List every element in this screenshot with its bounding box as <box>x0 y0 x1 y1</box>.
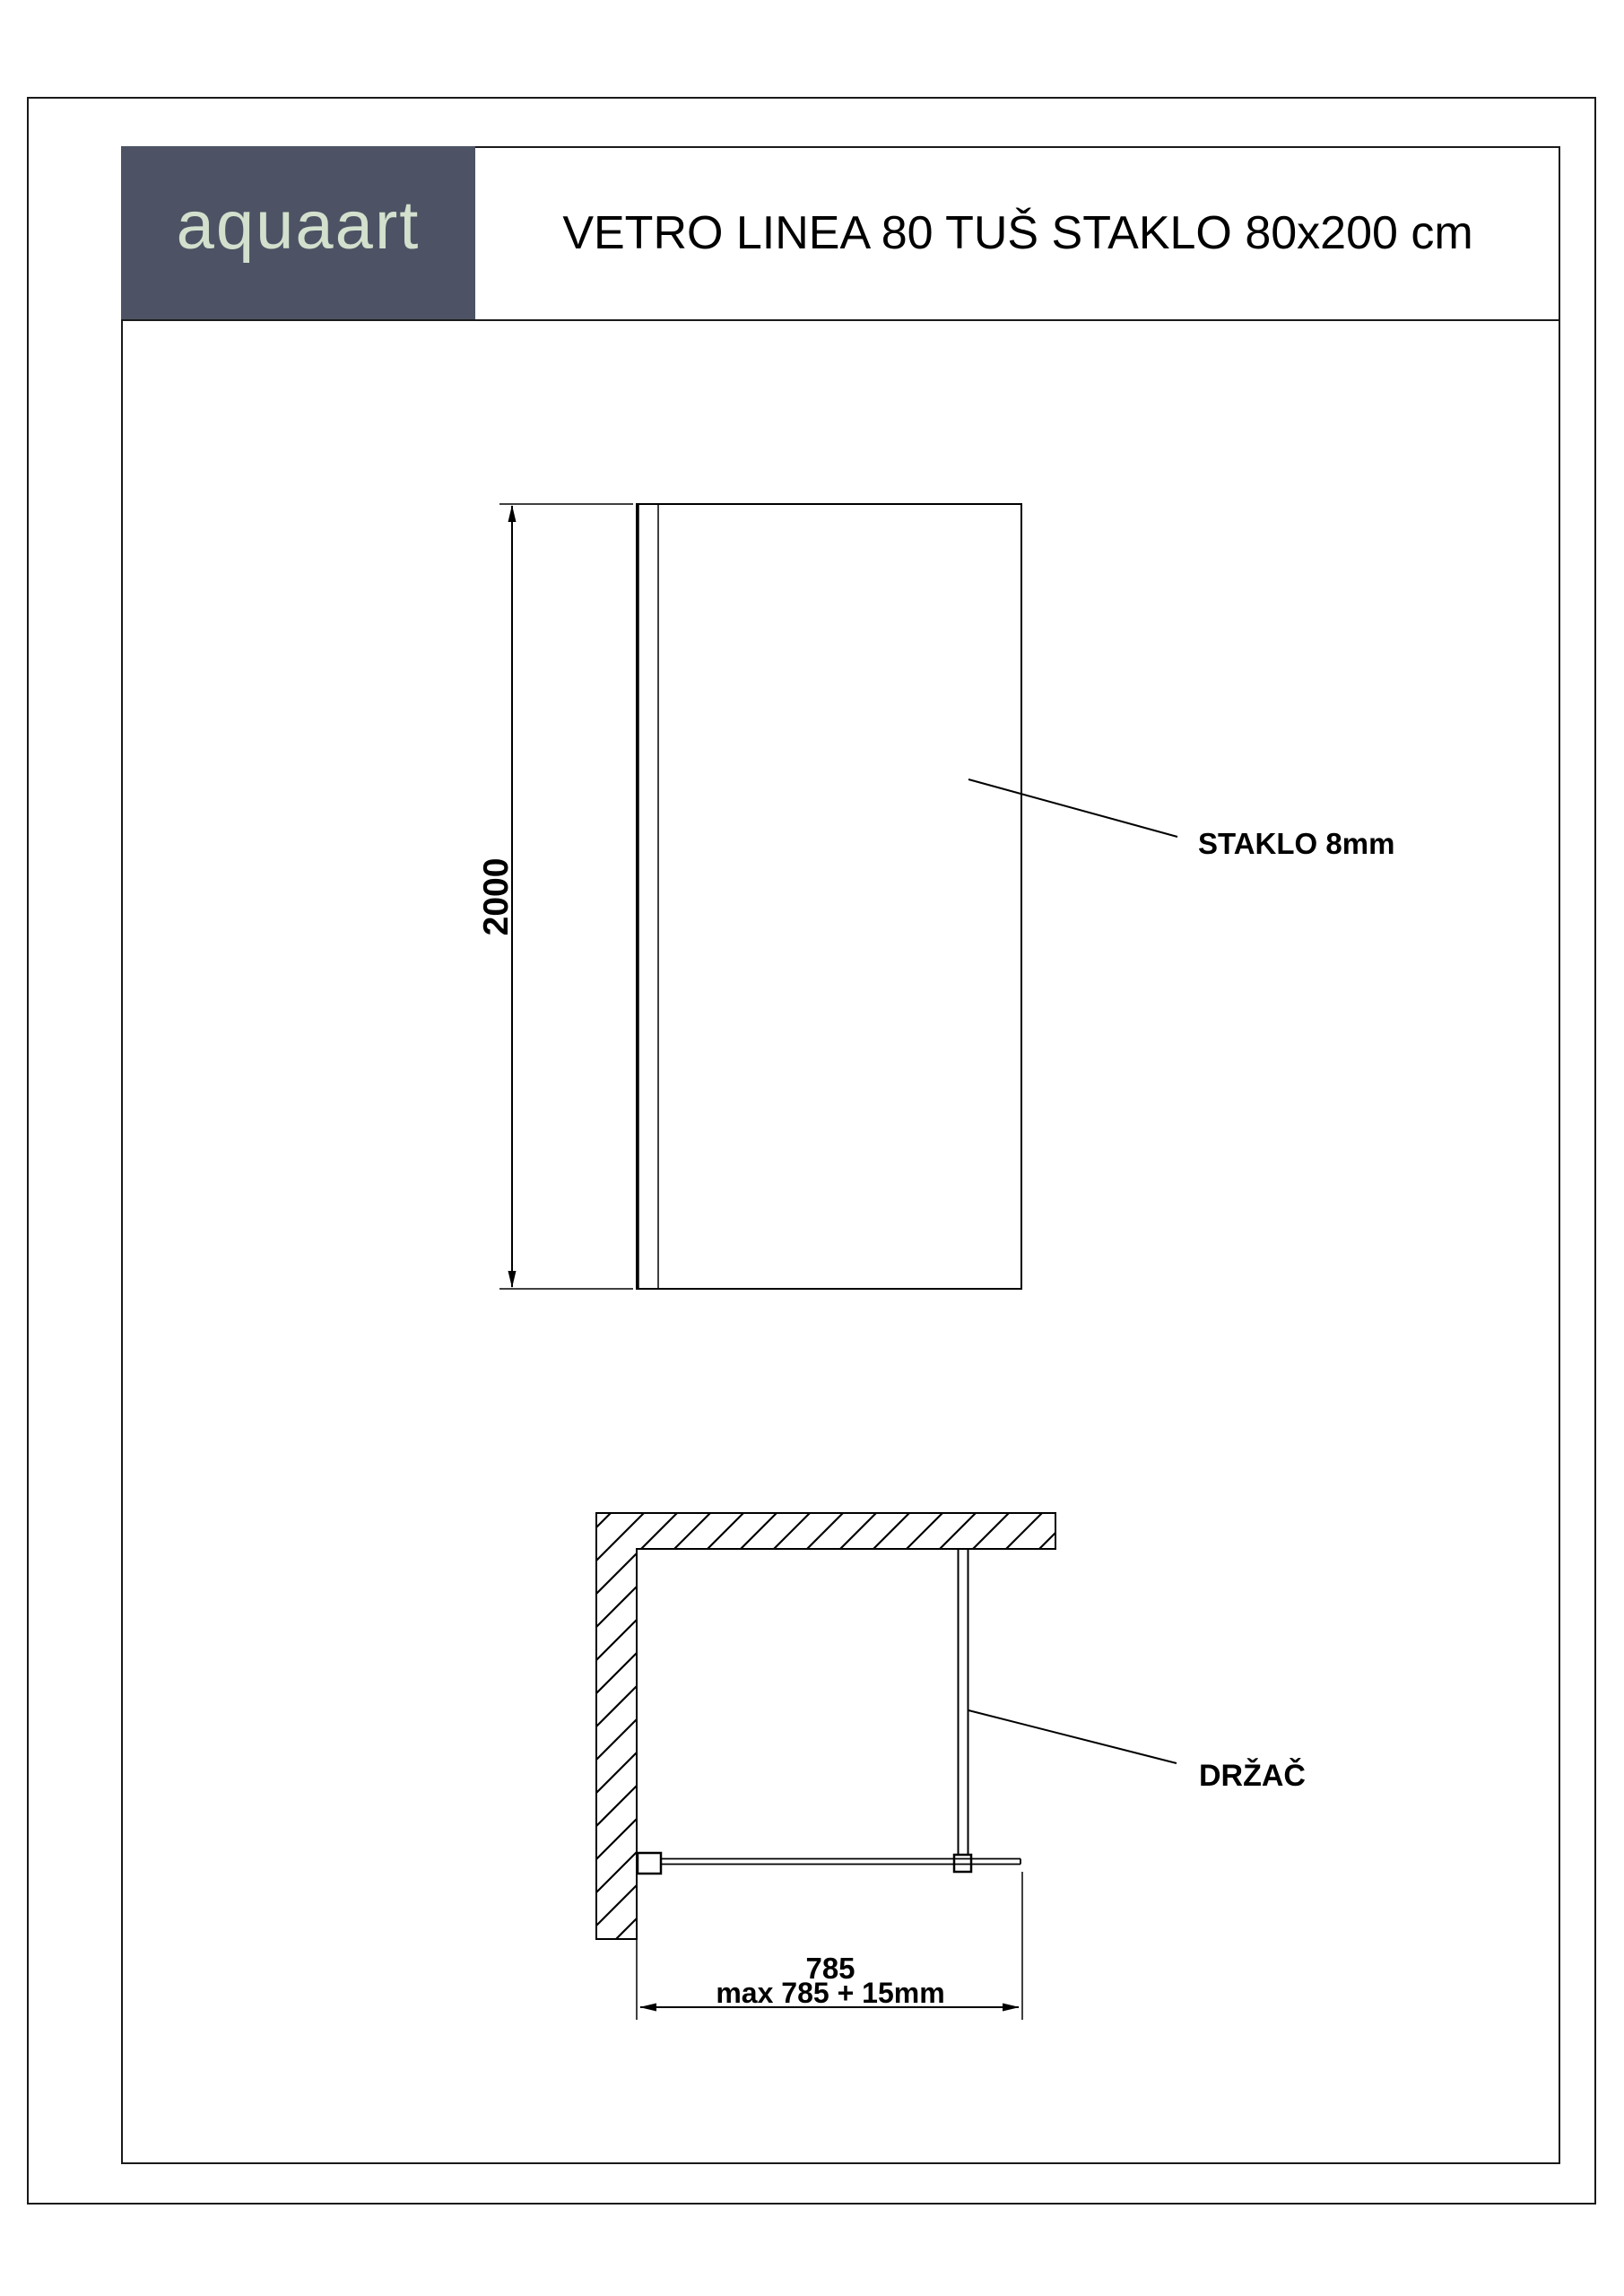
hatch-line <box>973 1513 1009 1549</box>
hatch-line <box>807 1513 843 1549</box>
hatch-line <box>940 1513 976 1549</box>
front-view: 2000 STAKLO 8mm <box>477 504 1394 1289</box>
arrow-left-icon <box>639 2004 656 2012</box>
glass-panel-outline <box>637 504 1021 1289</box>
hatch-line <box>596 1719 637 1760</box>
hatch-line <box>907 1513 942 1549</box>
arrow-down-icon <box>508 1271 517 1288</box>
hatch-line <box>708 1513 743 1549</box>
hatch-line <box>741 1513 777 1549</box>
hatch-line <box>596 1752 637 1793</box>
height-dimension-text: 2000 <box>477 858 516 936</box>
glass-leader-line <box>968 779 1177 837</box>
technical-drawing: 2000 STAKLO 8mm 785 ma <box>0 0 1624 2296</box>
hatch-line <box>1006 1513 1042 1549</box>
wall-hatching <box>596 1513 1055 1939</box>
width-dimension-max-text: max 785 + 15mm <box>716 1977 944 2009</box>
hatch-line <box>616 1918 637 1939</box>
arrow-up-icon <box>508 505 517 522</box>
holder-label: DRŽAČ <box>1199 1758 1306 1793</box>
arrow-right-icon <box>1003 2004 1020 2012</box>
hatch-line <box>596 1587 637 1627</box>
wall-outline <box>596 1513 1055 1939</box>
hatch-line <box>596 1513 611 1527</box>
hatch-line <box>596 1819 637 1859</box>
drawing-sheet: aquaart VETRO LINEA 80 TUŠ STAKLO 80x200… <box>0 0 1624 2296</box>
hatch-line <box>840 1513 876 1549</box>
holder-glass-clamp <box>954 1855 971 1872</box>
hatch-line <box>596 1686 637 1726</box>
hatch-line <box>674 1513 710 1549</box>
wall-bracket <box>638 1853 661 1874</box>
hatch-line <box>596 1852 637 1892</box>
hatch-line <box>596 1786 637 1826</box>
glass-label: STAKLO 8mm <box>1198 827 1394 860</box>
plan-view: 785 max 785 + 15mm DRŽAČ <box>596 1513 1306 2020</box>
hatch-line <box>596 1620 637 1660</box>
hatch-line <box>608 1513 644 1549</box>
hatch-line <box>596 1653 637 1693</box>
hatch-line <box>641 1513 677 1549</box>
hatch-line <box>1039 1533 1055 1549</box>
hatch-line <box>596 1553 637 1594</box>
hatch-line <box>596 1549 608 1561</box>
hatch-line <box>774 1513 810 1549</box>
hatch-line <box>873 1513 909 1549</box>
holder-leader-line <box>968 1710 1177 1763</box>
hatch-line <box>596 1885 637 1926</box>
